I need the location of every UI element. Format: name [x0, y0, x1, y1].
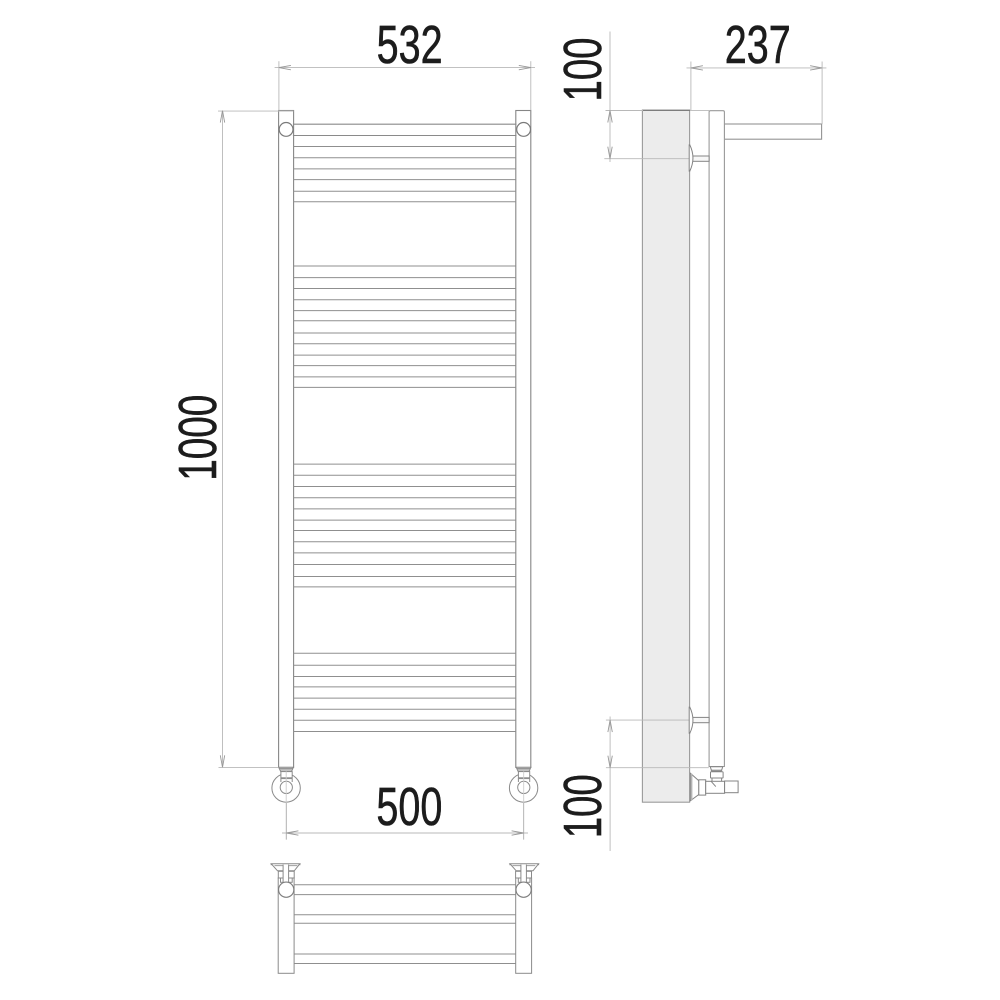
svg-text:500: 500	[376, 777, 442, 837]
svg-text:1000: 1000	[168, 395, 228, 481]
svg-text:100: 100	[553, 38, 613, 102]
svg-text:532: 532	[377, 15, 443, 75]
svg-text:100: 100	[553, 774, 613, 838]
svg-text:237: 237	[725, 15, 791, 75]
